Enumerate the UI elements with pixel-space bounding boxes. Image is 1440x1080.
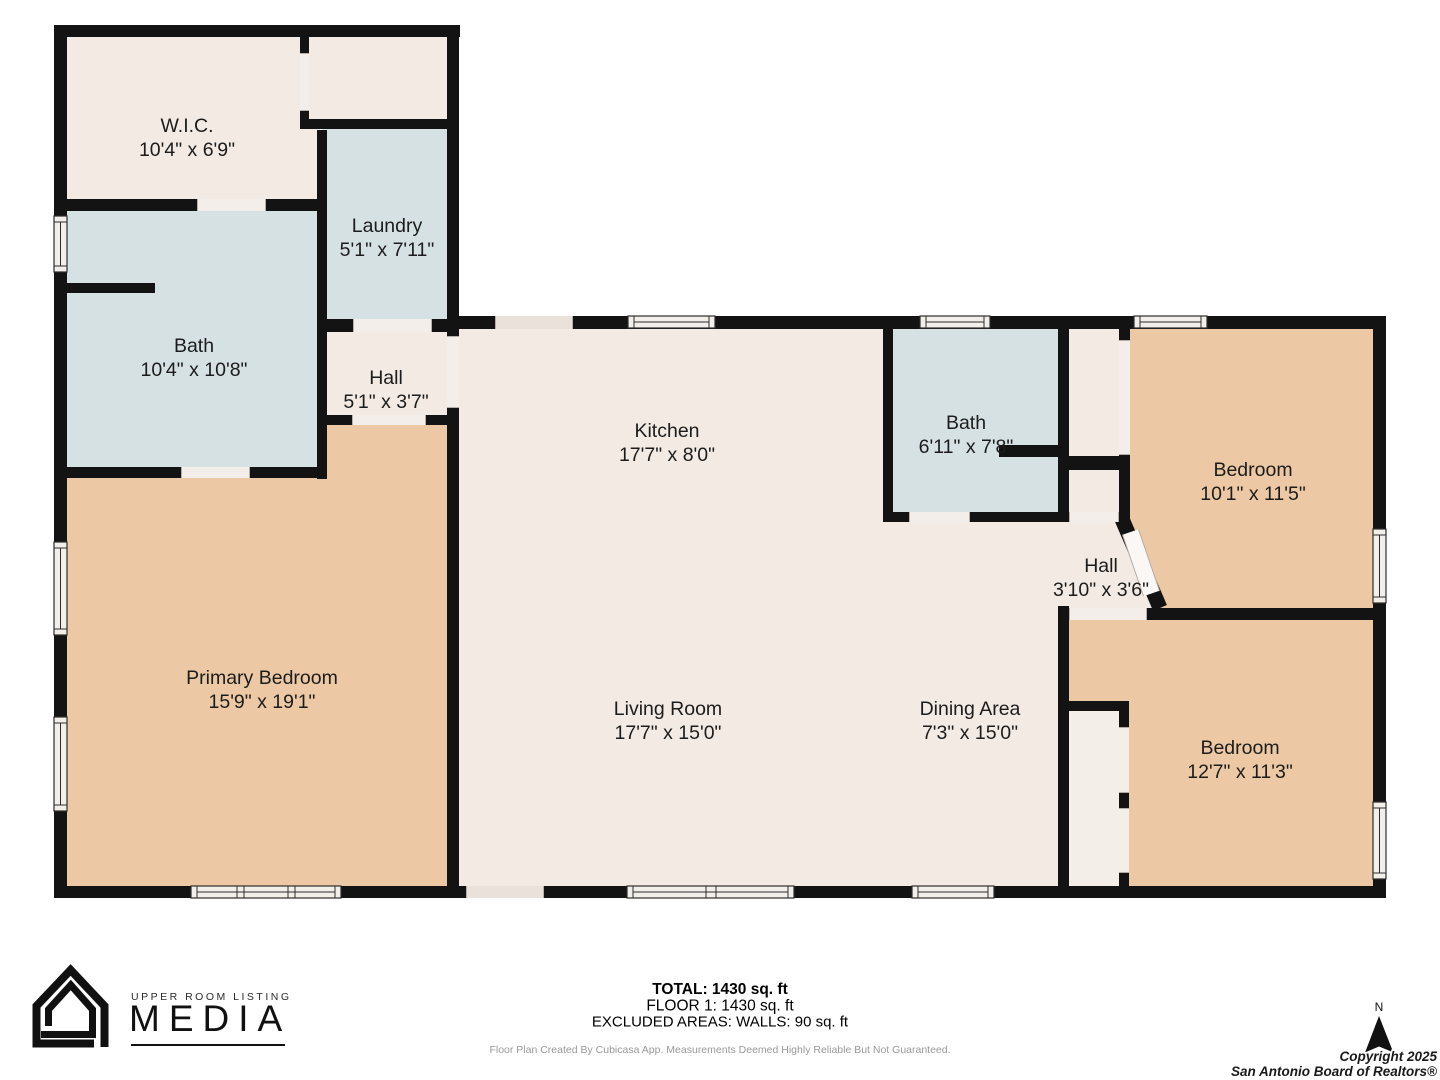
svg-text:Copyright 2025: Copyright 2025 bbox=[1339, 1049, 1437, 1064]
svg-text:3'10" x 3'6": 3'10" x 3'6" bbox=[1053, 579, 1149, 601]
svg-text:Hall: Hall bbox=[369, 367, 403, 389]
svg-text:17'7" x 15'0": 17'7" x 15'0" bbox=[615, 722, 722, 744]
svg-text:12'7" x 11'3": 12'7" x 11'3" bbox=[1187, 761, 1293, 783]
svg-text:Bedroom: Bedroom bbox=[1213, 459, 1292, 481]
svg-text:Hall: Hall bbox=[1084, 555, 1118, 577]
svg-text:EXCLUDED AREAS: WALLS: 90 sq.: EXCLUDED AREAS: WALLS: 90 sq. ft bbox=[592, 1014, 849, 1031]
svg-text:TOTAL: 1430 sq. ft: TOTAL: 1430 sq. ft bbox=[652, 981, 788, 998]
svg-text:Floor Plan Created By Cubicasa: Floor Plan Created By Cubicasa App. Meas… bbox=[489, 1044, 950, 1056]
svg-text:Living Room: Living Room bbox=[614, 698, 722, 720]
svg-text:Bath: Bath bbox=[174, 335, 214, 357]
svg-text:10'4" x 6'9": 10'4" x 6'9" bbox=[139, 139, 235, 161]
svg-text:7'3" x 15'0": 7'3" x 15'0" bbox=[922, 722, 1018, 744]
svg-text:17'7" x 8'0": 17'7" x 8'0" bbox=[619, 444, 715, 466]
svg-text:Dining Area: Dining Area bbox=[920, 698, 1021, 720]
svg-text:Laundry: Laundry bbox=[352, 215, 423, 237]
svg-text:San Antonio Board of Realtors®: San Antonio Board of Realtors® bbox=[1231, 1064, 1437, 1079]
svg-text:10'1" x 11'5": 10'1" x 11'5" bbox=[1200, 483, 1306, 505]
svg-text:MEDIA: MEDIA bbox=[129, 998, 291, 1039]
svg-text:Kitchen: Kitchen bbox=[634, 420, 699, 442]
svg-text:Bedroom: Bedroom bbox=[1200, 737, 1279, 759]
svg-text:W.I.C.: W.I.C. bbox=[160, 115, 213, 137]
svg-text:Primary Bedroom: Primary Bedroom bbox=[186, 667, 338, 689]
svg-text:5'1" x 3'7": 5'1" x 3'7" bbox=[343, 391, 428, 413]
svg-text:15'9" x 19'1": 15'9" x 19'1" bbox=[209, 691, 316, 713]
svg-text:5'1" x 7'11": 5'1" x 7'11" bbox=[340, 239, 435, 261]
svg-text:Bath: Bath bbox=[946, 412, 986, 434]
svg-text:6'11" x 7'8": 6'11" x 7'8" bbox=[919, 436, 1014, 458]
svg-text:FLOOR 1: 1430 sq. ft: FLOOR 1: 1430 sq. ft bbox=[646, 998, 794, 1015]
svg-text:N: N bbox=[1375, 1000, 1384, 1014]
svg-text:10'4" x 10'8": 10'4" x 10'8" bbox=[141, 359, 248, 381]
